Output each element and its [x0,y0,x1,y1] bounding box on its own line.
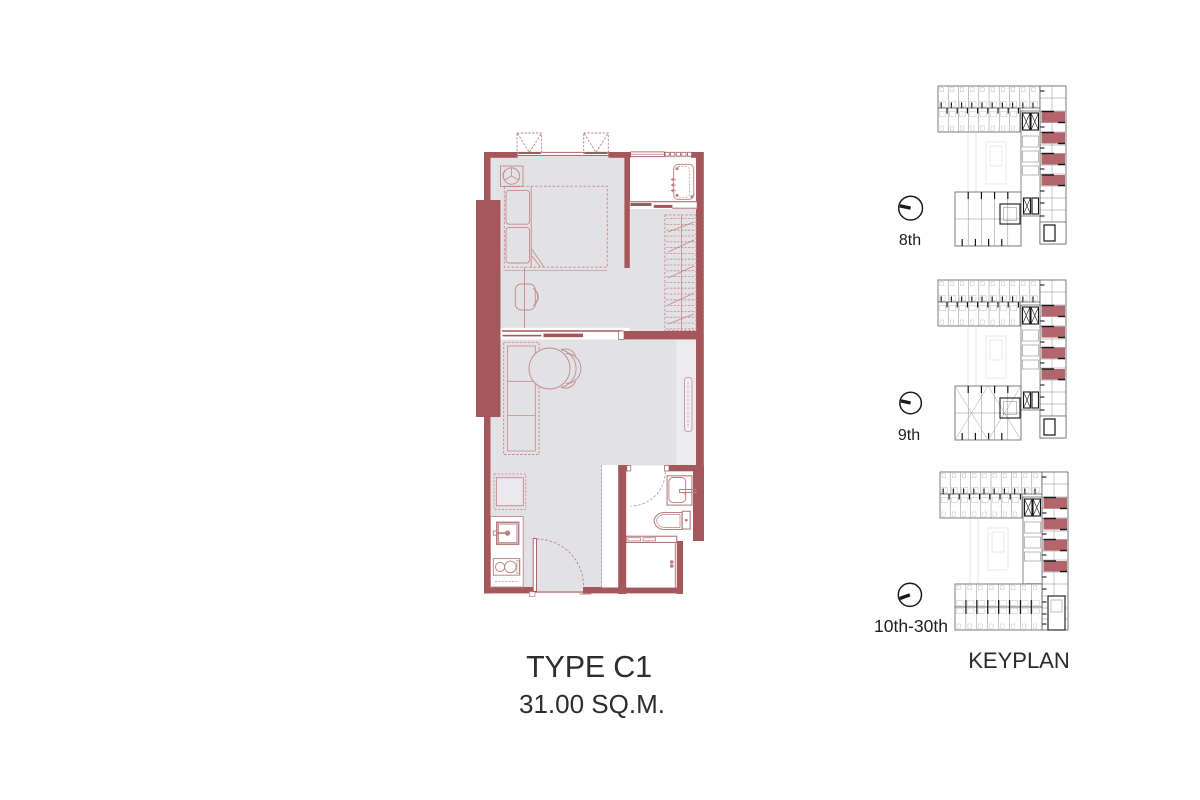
svg-text:KEYPLAN: KEYPLAN [968,648,1070,673]
svg-text:9th: 9th [898,427,920,444]
svg-text:TYPE C1: TYPE C1 [526,650,652,684]
svg-text:10th-30th: 10th-30th [874,616,948,636]
svg-text:8th: 8th [899,232,921,249]
svg-text:31.00 SQ.M.: 31.00 SQ.M. [519,689,665,719]
